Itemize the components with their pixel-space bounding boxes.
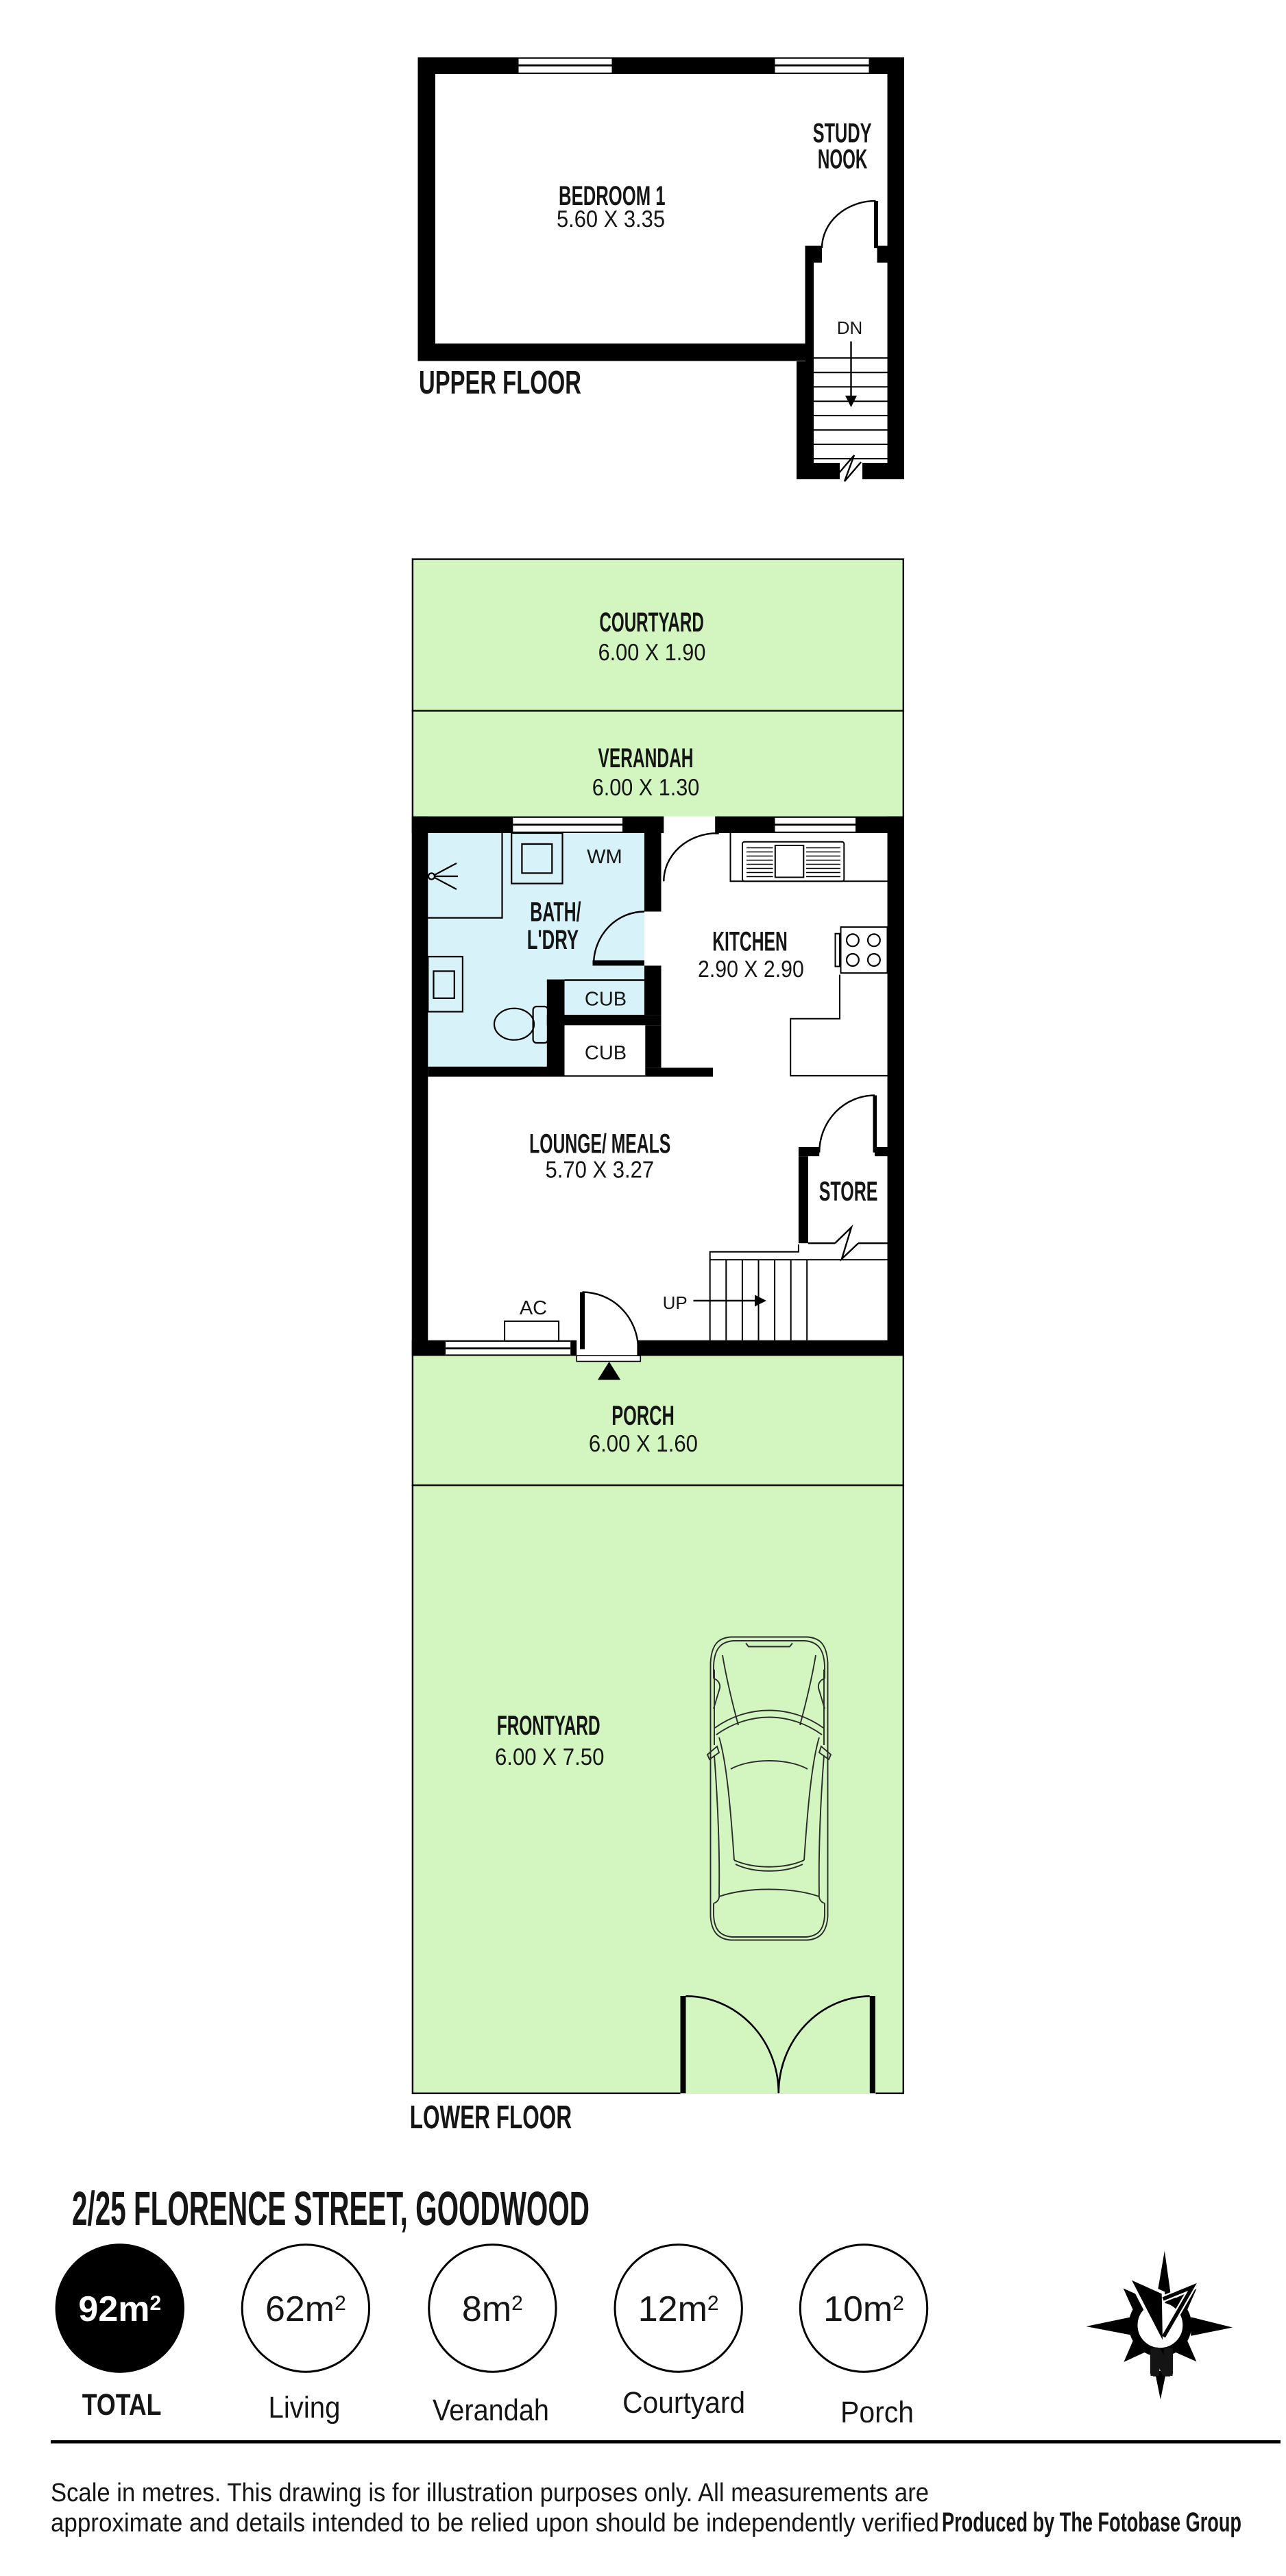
svg-text:Porch: Porch xyxy=(840,2396,914,2429)
svg-text:LOUNGE/ MEALS: LOUNGE/ MEALS xyxy=(529,1129,670,1159)
svg-text:L'DRY: L'DRY xyxy=(527,925,579,955)
svg-text:VERANDAH: VERANDAH xyxy=(598,743,694,773)
svg-text:AC: AC xyxy=(520,1297,547,1319)
svg-text:LOWER FLOOR: LOWER FLOOR xyxy=(410,2099,572,2136)
svg-text:KITCHEN: KITCHEN xyxy=(712,927,788,957)
svg-text:6.00 X 1.60: 6.00 X 1.60 xyxy=(589,1431,698,1457)
svg-text:Living: Living xyxy=(269,2391,341,2424)
svg-text:2.90 X 2.90: 2.90 X 2.90 xyxy=(698,956,804,983)
svg-text:BATH/: BATH/ xyxy=(530,898,581,928)
svg-text:Courtyard: Courtyard xyxy=(622,2386,745,2420)
svg-text:92m2: 92m2 xyxy=(78,2289,161,2329)
svg-text:STORE: STORE xyxy=(819,1177,878,1207)
svg-text:5.60 X 3.35: 5.60 X 3.35 xyxy=(557,206,665,232)
svg-text:6.00 X 1.30: 6.00 X 1.30 xyxy=(592,775,700,801)
svg-text:DN: DN xyxy=(837,317,863,338)
svg-text:WM: WM xyxy=(587,846,622,868)
svg-text:Produced by The Fotobase Group: Produced by The Fotobase Group xyxy=(942,2507,1241,2538)
svg-text:CUB: CUB xyxy=(585,1042,627,1064)
svg-text:62m2: 62m2 xyxy=(265,2289,346,2329)
svg-text:6.00 X 7.50: 6.00 X 7.50 xyxy=(495,1744,605,1770)
svg-text:approximate and details intend: approximate and details intended to be r… xyxy=(51,2509,939,2538)
svg-text:10m2: 10m2 xyxy=(823,2289,904,2329)
svg-text:FRONTYARD: FRONTYARD xyxy=(497,1711,600,1741)
svg-text:2/25 FLORENCE STREET, GOODWOOD: 2/25 FLORENCE STREET, GOODWOOD xyxy=(72,2182,590,2235)
svg-text:PORCH: PORCH xyxy=(611,1401,675,1431)
svg-text:COURTYARD: COURTYARD xyxy=(599,607,703,638)
svg-text:UPPER FLOOR: UPPER FLOOR xyxy=(419,365,581,401)
svg-text:N: N xyxy=(1151,2343,1172,2381)
svg-text:Scale in metres. This drawing: Scale in metres. This drawing is for ill… xyxy=(51,2479,929,2507)
svg-text:Verandah: Verandah xyxy=(433,2394,549,2427)
svg-text:12m2: 12m2 xyxy=(638,2289,719,2329)
svg-text:5.70 X 3.27: 5.70 X 3.27 xyxy=(546,1157,655,1183)
svg-text:NOOK: NOOK xyxy=(818,144,867,174)
svg-text:TOTAL: TOTAL xyxy=(82,2388,162,2422)
svg-text:CUB: CUB xyxy=(585,988,627,1010)
svg-text:6.00 X 1.90: 6.00 X 1.90 xyxy=(598,640,706,666)
svg-text:UP: UP xyxy=(663,1292,688,1313)
